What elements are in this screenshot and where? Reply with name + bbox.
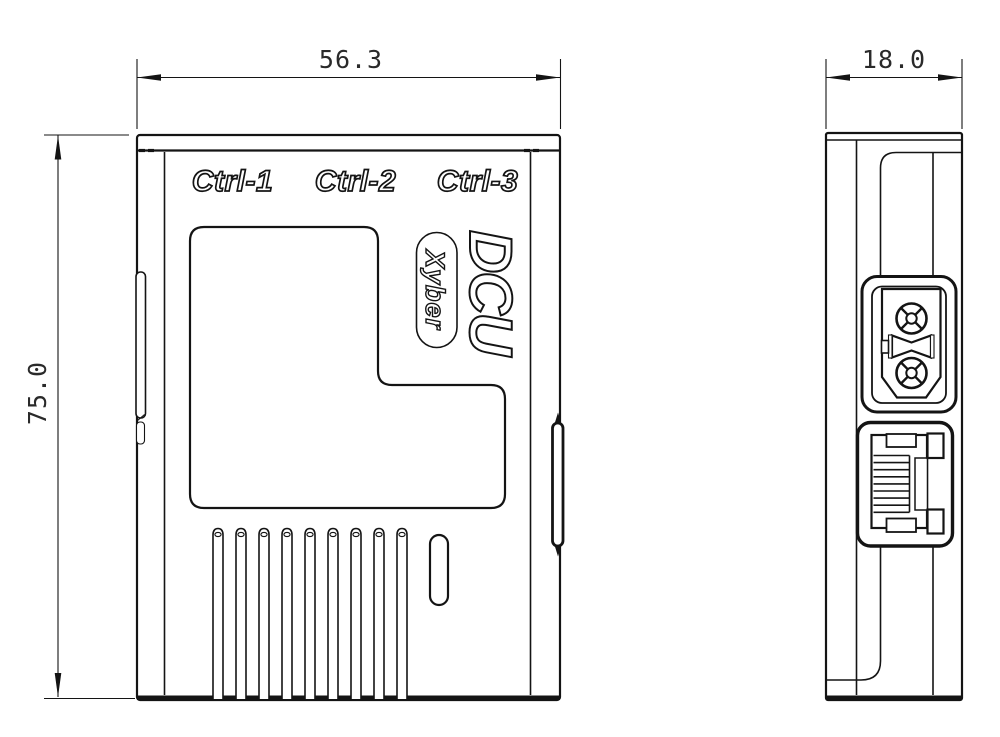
rj45-stud-bottom [928,510,944,534]
dimension-front-height: 75.0 [23,135,135,699]
vent-ribs-icon [213,529,407,700]
clip-body [136,272,146,418]
xt30-key-tab [882,341,889,354]
rib-cap [353,532,359,536]
front-slot-icon [430,535,448,605]
rib-cap [215,532,221,536]
technical-drawing-canvas: Ctrl-1 Ctrl-2 Ctrl-3 DCU Xyber [0,0,1000,737]
label-ctrl-1: Ctrl-1 [192,165,273,198]
vent-rib [282,529,292,700]
dimension-value-front-width: 56.3 [319,45,383,74]
rj45-latch-slot [915,458,928,510]
latch-body [553,423,564,546]
side-view [826,133,962,700]
drawing-sheet: Ctrl-1 Ctrl-2 Ctrl-3 DCU Xyber [0,0,1000,737]
product-logo: DCU [457,230,524,358]
rj45-tab-top [887,434,917,447]
seam-dash [533,149,539,152]
side-enclosure-outline [826,133,962,700]
dimension-arrow-icon [55,136,62,160]
rj45-tab-bottom [887,519,917,533]
label-ctrl-2: Ctrl-2 [315,165,396,198]
front-view: Ctrl-1 Ctrl-2 Ctrl-3 DCU Xyber [136,135,563,700]
front-bottom-edge [137,696,560,701]
seam-dash [148,149,154,152]
brand-logo: Xyber [420,248,450,331]
vent-rib [213,529,223,700]
dimension-side-depth: 18.0 [826,45,962,129]
seam-dash [139,149,145,152]
vent-rib [259,529,269,700]
dimension-arrow-icon [826,74,850,81]
dimension-value-side-depth: 18.0 [862,45,926,74]
xt30-terminal-top [897,304,927,334]
rib-cap [376,532,382,536]
seam-dash [524,149,530,152]
rj45-ethernet-port-icon [858,423,953,547]
rib-cap [307,532,313,536]
rib-cap [330,532,336,536]
dimension-arrow-icon [938,74,962,81]
dimension-front-width: 56.3 [137,45,561,129]
dimension-arrow-icon [536,74,560,81]
xt30-key-bar [931,335,935,358]
label-ctrl-3: Ctrl-3 [437,165,518,198]
rj45-stud-top [928,434,944,459]
xt30-terminal-bottom [897,358,927,388]
side-bottom-edge [826,696,962,701]
clip-foot [137,422,145,444]
vent-rib [305,529,315,700]
vent-rib [236,529,246,700]
vent-rib [351,529,361,700]
rib-cap [261,532,267,536]
dimension-value-front-height: 75.0 [23,361,52,425]
rib-cap [284,532,290,536]
xt30-power-connector-icon [862,277,956,413]
vent-rib [374,529,384,700]
right-latch-icon [553,413,564,557]
vent-rib [328,529,338,700]
vent-rib [397,529,407,700]
rib-cap [399,532,405,536]
rib-cap [238,532,244,536]
dimension-arrow-icon [137,74,161,81]
dimension-arrow-icon [55,673,62,697]
